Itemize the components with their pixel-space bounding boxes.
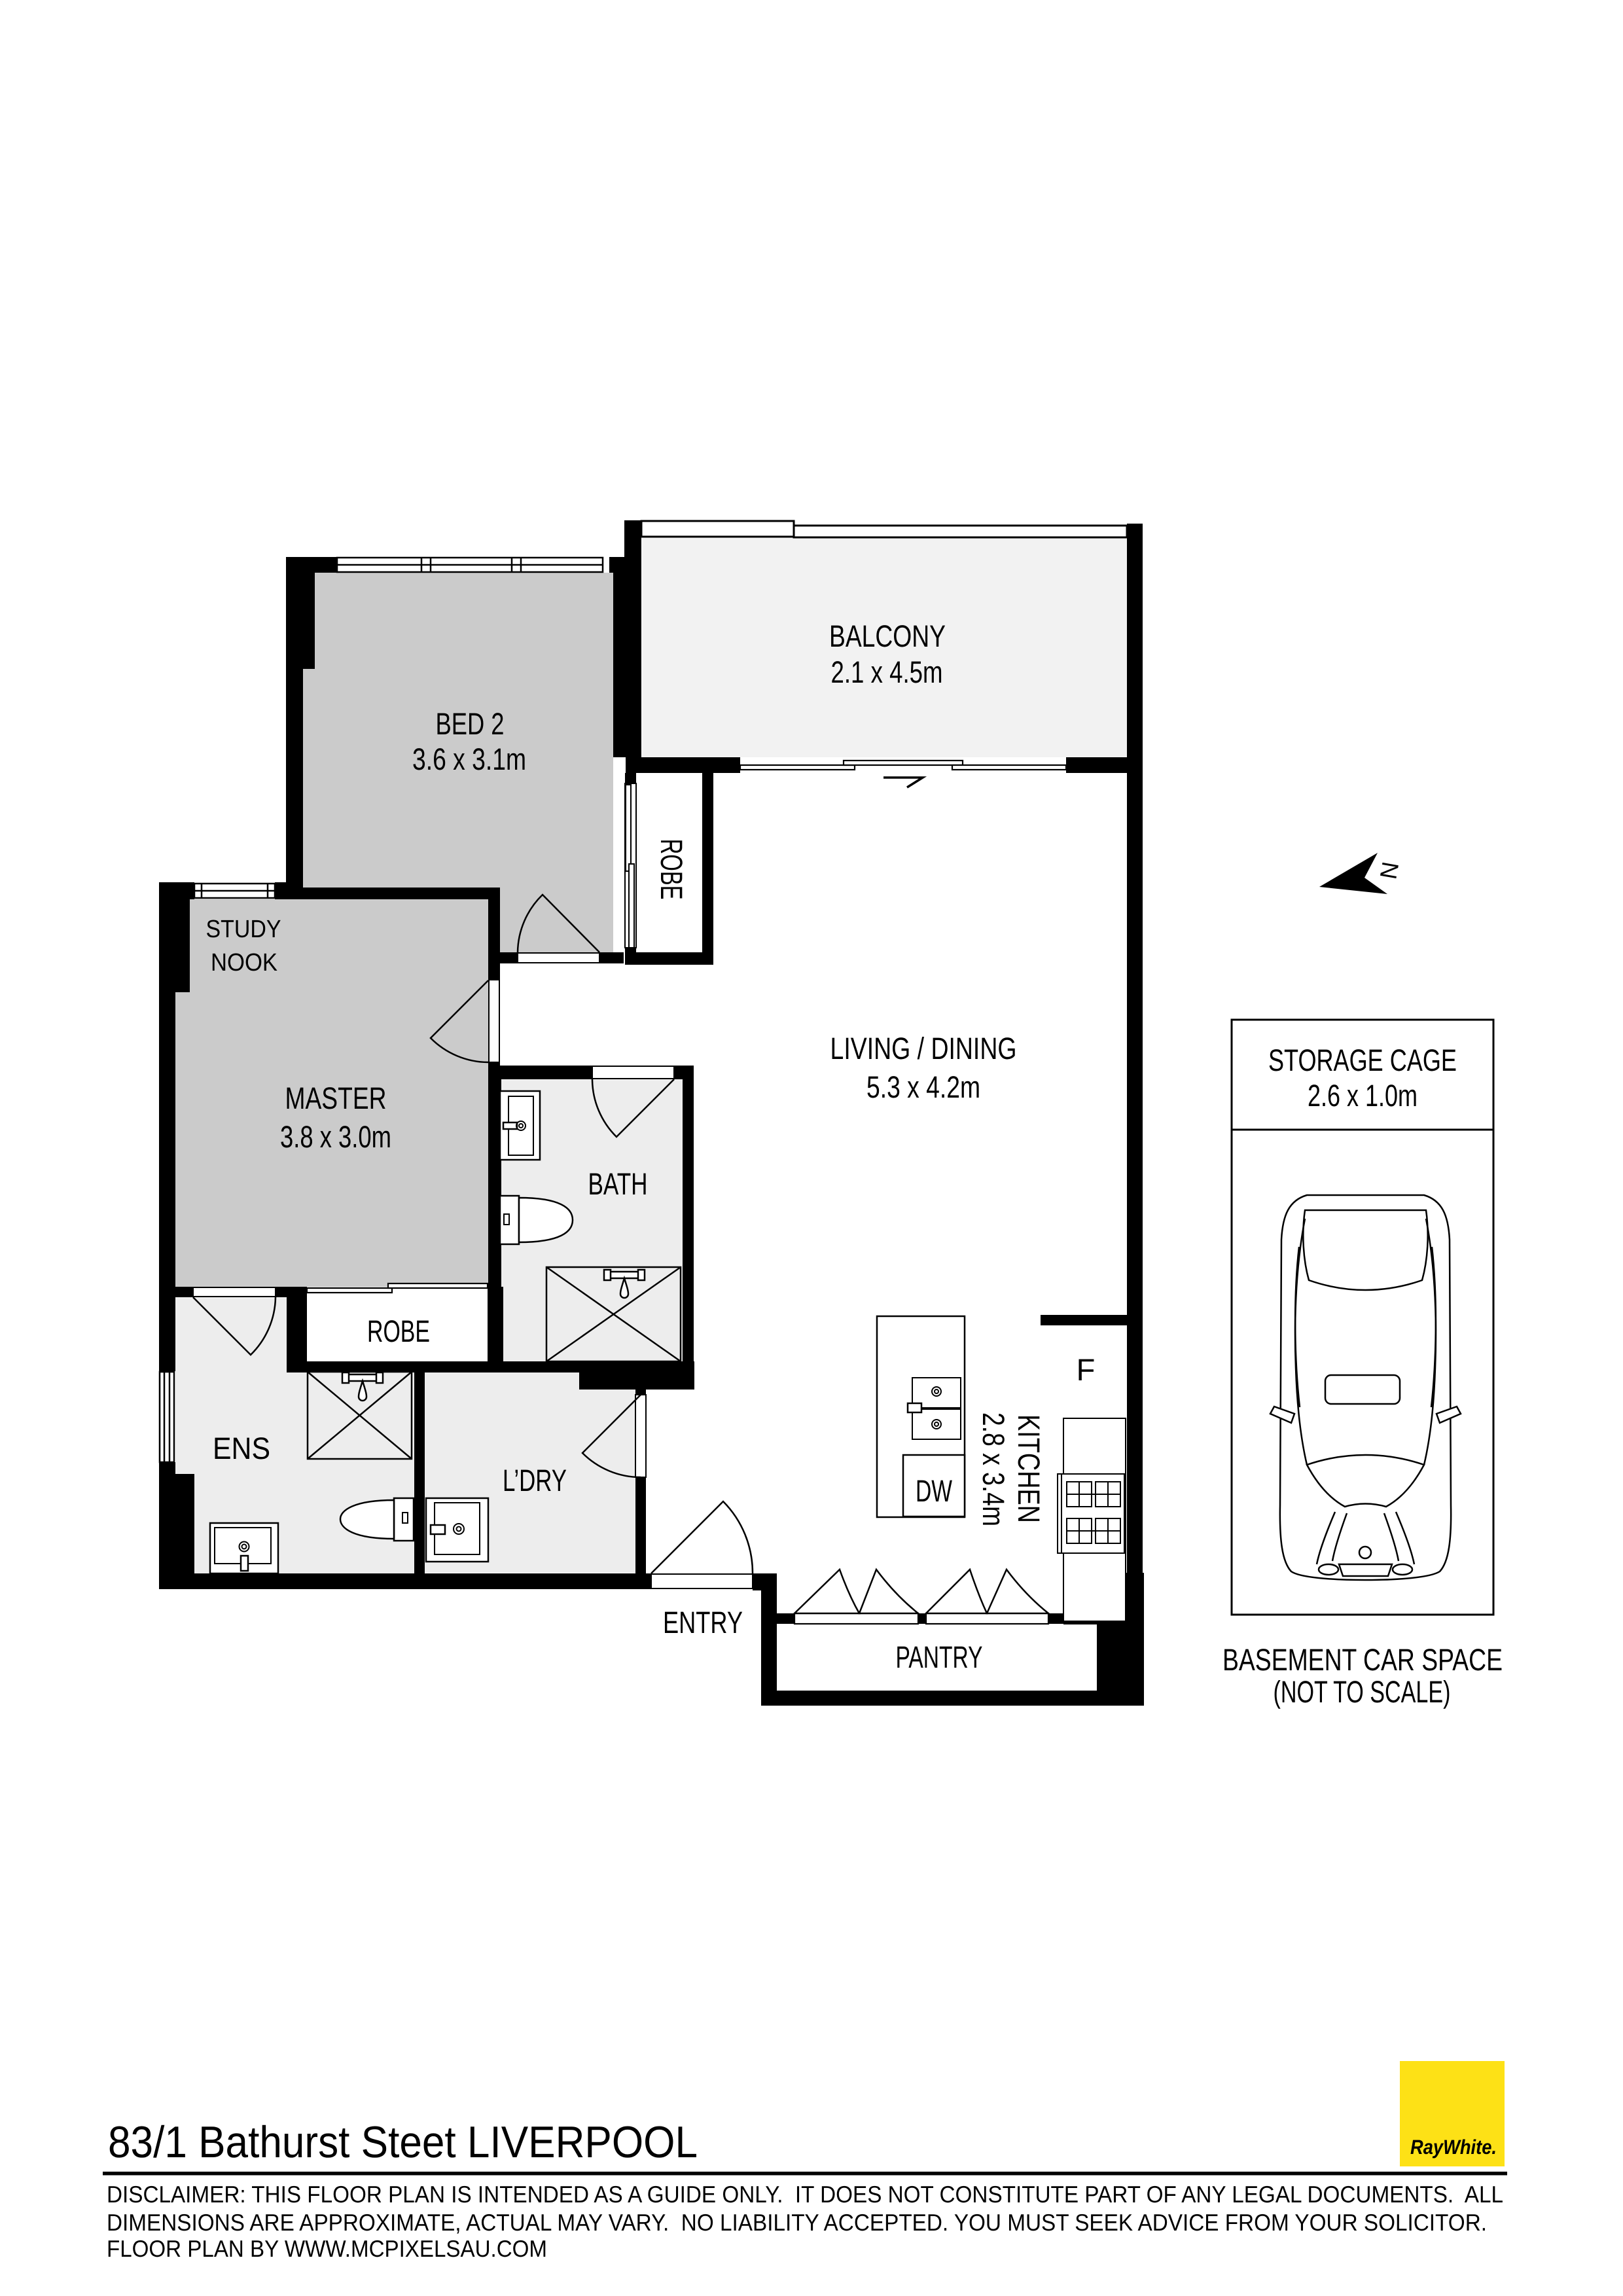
svg-text:FLOOR PLAN BY WWW.MCPIXELSAU.C: FLOOR PLAN BY WWW.MCPIXELSAU.COM [107, 2235, 547, 2262]
svg-text:LIVING / DINING: LIVING / DINING [830, 1031, 1017, 1066]
svg-text:STUDY: STUDY [206, 916, 281, 943]
svg-text:F: F [1077, 1352, 1096, 1387]
svg-text:L’DRY: L’DRY [503, 1463, 567, 1498]
svg-text:ENTRY: ENTRY [663, 1605, 743, 1640]
svg-text:5.3 x 4.2m: 5.3 x 4.2m [866, 1069, 980, 1104]
svg-text:3.8 x 3.0m: 3.8 x 3.0m [280, 1119, 391, 1154]
svg-text:BED 2: BED 2 [436, 706, 505, 741]
svg-text:BASEMENT CAR SPACE: BASEMENT CAR SPACE [1222, 1642, 1503, 1677]
svg-text:3.6 x 3.1m: 3.6 x 3.1m [412, 742, 526, 776]
svg-text:PANTRY: PANTRY [896, 1640, 983, 1674]
svg-text:(NOT TO SCALE): (NOT TO SCALE) [1274, 1674, 1451, 1709]
svg-text:83/1 Bathurst Steet LIVERPOOL: 83/1 Bathurst Steet LIVERPOOL [108, 2117, 698, 2167]
svg-text:BALCONY: BALCONY [829, 619, 946, 653]
svg-text:STORAGE CAGE: STORAGE CAGE [1268, 1043, 1457, 1077]
svg-text:BATH: BATH [588, 1166, 648, 1201]
svg-text:MASTER: MASTER [285, 1081, 387, 1115]
svg-text:DISCLAIMER: THIS FLOOR PLAN IS: DISCLAIMER: THIS FLOOR PLAN IS INTENDED … [107, 2181, 1503, 2208]
svg-text:2.6 x 1.0m: 2.6 x 1.0m [1308, 1078, 1418, 1113]
svg-text:DIMENSIONS ARE APPROXIMATE, AC: DIMENSIONS ARE APPROXIMATE, ACTUAL MAY V… [107, 2209, 1487, 2236]
svg-text:RayWhite.: RayWhite. [1410, 2136, 1497, 2159]
svg-text:ROBE: ROBE [654, 839, 689, 900]
svg-text:ROBE: ROBE [367, 1314, 430, 1348]
svg-text:2.1 x 4.5m: 2.1 x 4.5m [831, 655, 943, 689]
svg-text:2.8 x 3.4m: 2.8 x 3.4m [976, 1412, 1011, 1526]
svg-text:ENS: ENS [213, 1431, 270, 1465]
svg-text:DW: DW [916, 1473, 952, 1508]
svg-text:NOOK: NOOK [211, 949, 277, 977]
svg-text:KITCHEN: KITCHEN [1012, 1414, 1046, 1523]
